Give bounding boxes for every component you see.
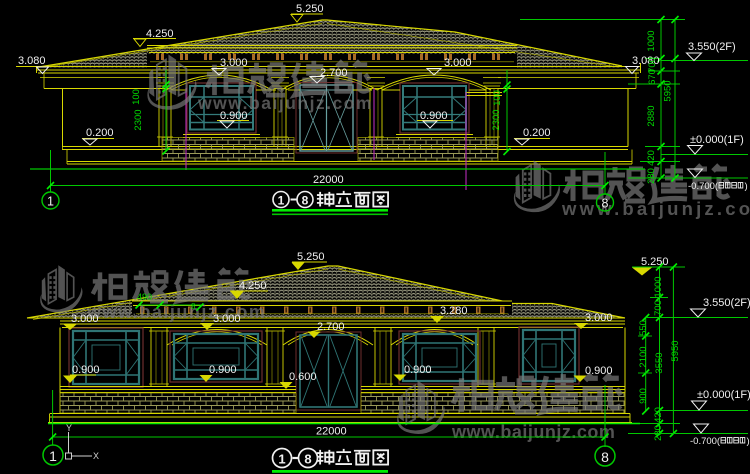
- svg-text:Y: Y: [66, 423, 72, 433]
- svg-text:): ): [745, 181, 748, 192]
- svg-text:2300: 2300: [133, 109, 144, 130]
- svg-text:www.baijunjz.com: www.baijunjz.com: [561, 198, 750, 219]
- svg-text:0.900: 0.900: [585, 365, 613, 377]
- svg-text:5.250: 5.250: [296, 3, 324, 15]
- svg-text:22000: 22000: [313, 174, 344, 186]
- svg-text:3.000: 3.000: [213, 313, 241, 325]
- svg-text:3550: 3550: [654, 352, 665, 373]
- svg-text:0.900: 0.900: [209, 364, 237, 376]
- svg-text:3.080: 3.080: [18, 55, 46, 67]
- svg-text:0.900: 0.900: [404, 364, 432, 376]
- svg-text:8: 8: [602, 197, 609, 211]
- svg-text:700: 700: [653, 300, 664, 316]
- svg-text:2880: 2880: [646, 105, 657, 126]
- svg-text:-0.700(: -0.700(: [688, 181, 719, 192]
- svg-text:3.000: 3.000: [71, 313, 99, 325]
- svg-text:2.700: 2.700: [317, 321, 345, 333]
- svg-text:900: 900: [638, 388, 649, 404]
- svg-text:8: 8: [302, 194, 309, 208]
- svg-text:1000: 1000: [653, 276, 664, 297]
- svg-text:0.900: 0.900: [72, 364, 100, 376]
- svg-text:670: 670: [647, 69, 658, 85]
- svg-text:490: 490: [137, 292, 152, 302]
- svg-text:1: 1: [278, 452, 285, 467]
- svg-text:1: 1: [49, 448, 57, 464]
- svg-text:5.250: 5.250: [641, 256, 669, 268]
- svg-text:3.000: 3.000: [585, 312, 613, 324]
- svg-text:100: 100: [131, 89, 142, 105]
- svg-text:3.000: 3.000: [220, 57, 248, 69]
- svg-text:5950: 5950: [670, 340, 681, 361]
- svg-text:0.200: 0.200: [523, 127, 551, 139]
- svg-text:3.280: 3.280: [440, 305, 468, 317]
- svg-text:3.550(2F): 3.550(2F): [703, 297, 750, 309]
- svg-text:22000: 22000: [316, 426, 347, 438]
- svg-text:5950: 5950: [663, 80, 674, 101]
- svg-text:±0.000(1F): ±0.000(1F): [697, 389, 750, 401]
- svg-text:0.200: 0.200: [86, 127, 114, 139]
- svg-text:2100: 2100: [638, 346, 649, 367]
- svg-text:8: 8: [191, 302, 196, 311]
- svg-text:-0.700(: -0.700(: [690, 436, 721, 447]
- svg-text:1: 1: [278, 194, 285, 208]
- svg-text:0.600: 0.600: [289, 371, 317, 383]
- svg-text:2.700: 2.700: [320, 67, 348, 79]
- svg-text:X: X: [93, 451, 99, 461]
- svg-text:3.550(2F): 3.550(2F): [688, 41, 736, 53]
- svg-text:4.250: 4.250: [239, 280, 267, 292]
- svg-text:±0.000(1F): ±0.000(1F): [690, 134, 744, 146]
- svg-text:420: 420: [646, 150, 657, 166]
- svg-text:2300: 2300: [491, 109, 502, 130]
- svg-text:8: 8: [601, 449, 609, 465]
- svg-text:www.baijunjz.com: www.baijunjz.com: [451, 422, 615, 442]
- svg-text:1000: 1000: [646, 30, 657, 51]
- svg-text:100: 100: [492, 90, 503, 106]
- svg-text:420: 420: [653, 407, 664, 423]
- svg-text:550: 550: [638, 320, 649, 336]
- svg-text:): ): [747, 436, 750, 447]
- svg-text:1: 1: [47, 195, 54, 209]
- svg-text:280: 280: [646, 168, 657, 184]
- svg-text:5.250: 5.250: [297, 251, 325, 263]
- svg-text:3.000: 3.000: [444, 57, 472, 69]
- svg-text:8: 8: [304, 452, 311, 467]
